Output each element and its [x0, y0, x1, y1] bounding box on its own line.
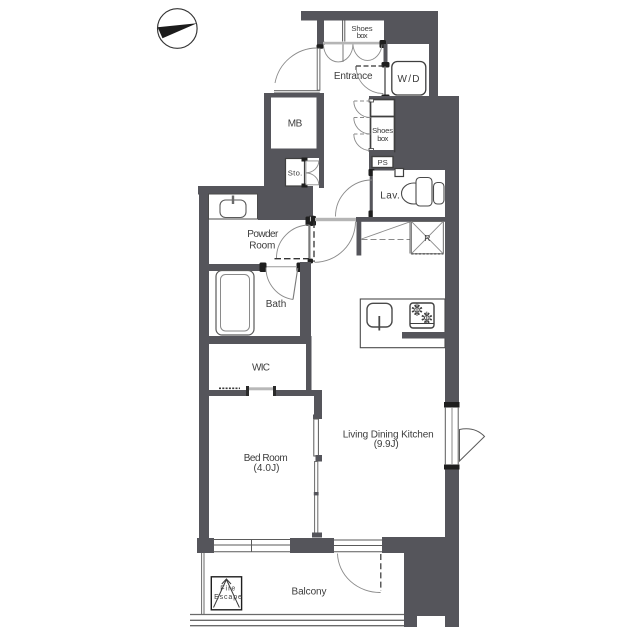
svg-text:W/D: W/D — [398, 74, 420, 85]
svg-text:box: box — [377, 134, 388, 143]
svg-text:Escape: Escape — [214, 594, 242, 601]
svg-text:Room: Room — [249, 240, 275, 251]
svg-text:Powder: Powder — [247, 229, 279, 240]
svg-text:WIC: WIC — [252, 363, 270, 374]
svg-text:Lav.: Lav. — [380, 191, 400, 202]
svg-text:(4.0J): (4.0J) — [254, 463, 280, 474]
svg-text:PS: PS — [377, 158, 387, 167]
svg-text:Balcony: Balcony — [292, 587, 327, 598]
svg-text:Bath: Bath — [266, 299, 287, 310]
svg-text:Sto.: Sto. — [288, 168, 303, 177]
svg-text:Entrance: Entrance — [334, 71, 373, 82]
svg-text:Fire: Fire — [220, 586, 235, 593]
svg-text:box: box — [357, 31, 368, 40]
svg-text:R: R — [424, 233, 430, 243]
svg-text:MB: MB — [288, 119, 303, 130]
svg-text:(9.9J): (9.9J) — [374, 439, 399, 450]
